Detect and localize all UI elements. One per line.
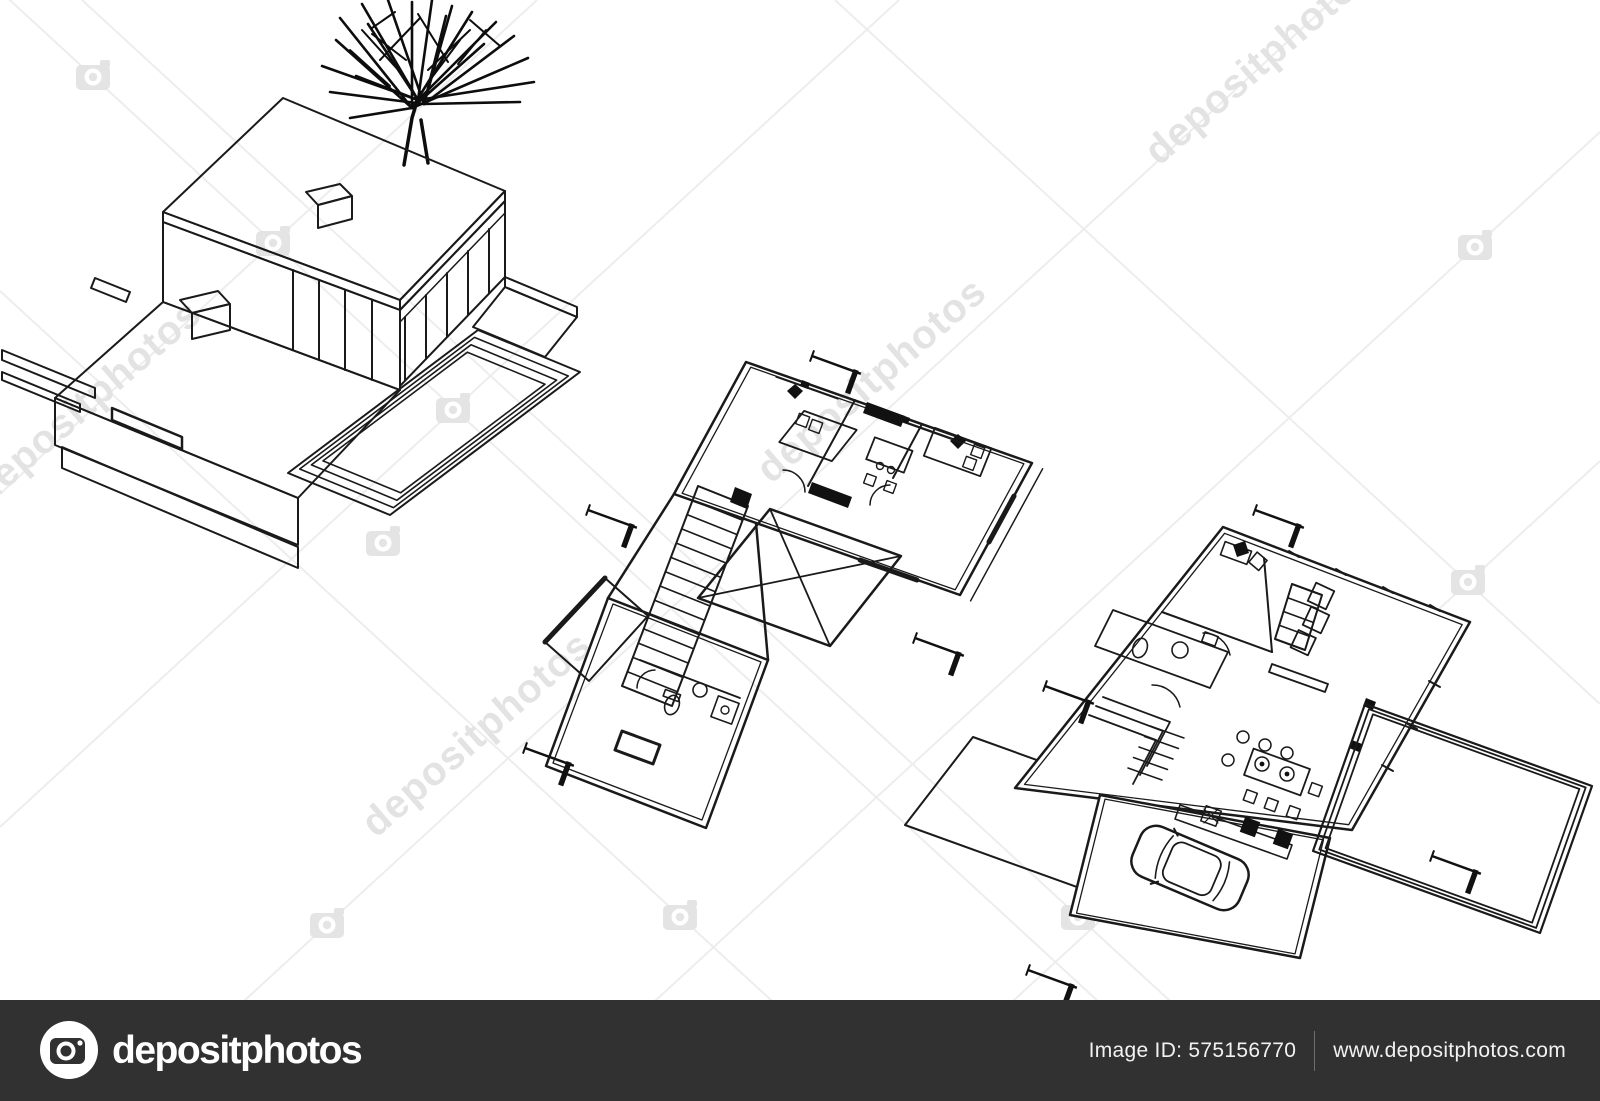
depositphotos-logo: depositphotos	[36, 1000, 361, 1101]
scene-svg: depositphotos depositphotos depositphoto…	[0, 0, 1600, 1001]
website-text: www.depositphotos.com	[1333, 1039, 1566, 1063]
floor-plan-ground	[905, 527, 1592, 958]
camera-watermark-icon	[366, 526, 400, 556]
watermark-text: depositphotos	[1136, 0, 1383, 173]
camera-watermark-icon	[1458, 230, 1492, 260]
watermark-text: depositphotos	[0, 291, 210, 514]
footer-divider	[1314, 1031, 1315, 1071]
image-id-text: Image ID: 575156770	[1089, 1039, 1297, 1063]
footer-bar: depositphotos Image ID: 575156770 www.de…	[0, 1000, 1600, 1101]
watermark-lattice	[0, 0, 1600, 1001]
logo-text: depositphotos	[112, 1029, 361, 1073]
stock-photo-page: depositphotos depositphotos depositphoto…	[0, 0, 1600, 1101]
camera-watermark-icon	[310, 908, 344, 938]
watermark-layer: depositphotos depositphotos depositphoto…	[0, 0, 1600, 1001]
watermark-text: depositphotos	[353, 623, 600, 846]
camera-icon	[36, 1000, 106, 1101]
camera-watermark-icon	[1451, 565, 1485, 595]
tree-sketch	[322, 0, 534, 165]
